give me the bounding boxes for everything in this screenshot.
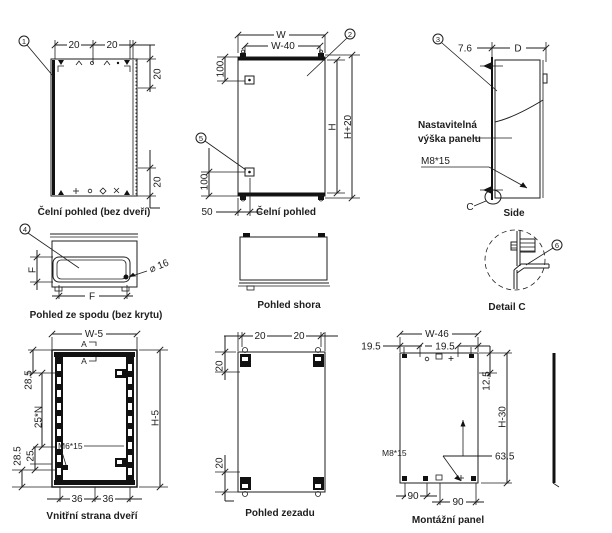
dim-door-pitch: 25*N: [34, 406, 45, 428]
dim-door-hinge-left: 36: [71, 494, 83, 505]
balloon-5-number: 5: [199, 134, 203, 143]
dim-rear-side-top: 20: [215, 360, 226, 372]
dim-door-height: H-5: [151, 410, 162, 427]
dim-front-width: W: [276, 30, 286, 41]
dim-panel-height: H-30: [498, 406, 509, 428]
dim-bottom-depth: F: [28, 267, 39, 273]
dim-panel-left: 19.5: [361, 342, 381, 353]
panel-note-line1: Nastavitelná: [418, 120, 477, 131]
dim-rear-top-left: 20: [254, 331, 266, 342]
view-detail-c: 6 Detail C: [485, 230, 562, 313]
view-top: Pohled shora: [238, 233, 330, 311]
balloon-6: 6: [552, 240, 562, 250]
dim-front-stud-offset: 50: [201, 207, 213, 218]
bottom-linework: [28, 233, 147, 299]
dim-rear-top-right: 20: [293, 331, 305, 342]
balloon-1: 1: [19, 36, 29, 46]
hole-diameter-label: ⌀ 16: [148, 257, 171, 275]
panel-note-line2: výška panelu: [418, 134, 481, 145]
panel-stud-label: M8*15: [382, 448, 407, 458]
view-front-no-door: 20 20 20 20 1 Čelní pohled (bez dveří): [19, 36, 164, 218]
technical-drawing-canvas: 20 20 20 20 1 Čelní pohled (bez dveří): [0, 0, 612, 533]
view-door-inner: W-5 A A 28.5 25*N 25 28.5 36 36 H-5 M6*1…: [12, 329, 168, 522]
caption-top: Pohled shora: [257, 300, 321, 311]
dim-door-bottom: 28.5: [13, 446, 24, 466]
door-stud-label: M6*15: [58, 441, 83, 451]
view-side: 7.6 D Nastavitelná výška panelu M8*15 C …: [418, 34, 549, 219]
detail-c-reference: C: [466, 202, 473, 213]
balloon-4-number: 4: [23, 225, 27, 234]
balloon-3-number: 3: [436, 35, 440, 44]
panel-linework: [383, 331, 559, 505]
dim-side-depth: D: [514, 44, 521, 55]
view-bottom-no-cover: F F ⌀ 16 4 Pohled ze spodu (bez krytu): [20, 224, 171, 321]
dim-door-top: 28.5: [24, 370, 35, 390]
dim-rear-side-bottom: 20: [215, 457, 226, 469]
side-stud-label: M8*15: [421, 156, 450, 167]
caption-rear: Pohled zezadu: [245, 508, 314, 519]
view-front: W W-40 100 100 50 H H+20 2 5 Čelní pohle…: [196, 29, 360, 218]
dim-front-nd-top-right: 20: [106, 40, 118, 51]
dim-bottom-width: F: [89, 292, 95, 303]
dim-panel-bottom-right: 90: [452, 497, 464, 508]
dim-panel-mid: 63.5: [495, 452, 515, 463]
drawing-sheet: 20 20 20 20 1 Čelní pohled (bez dveří): [0, 0, 612, 533]
balloon-5: 5: [196, 133, 206, 143]
balloon-6-number: 6: [555, 241, 559, 250]
dim-front-nd-side-bottom: 20: [153, 176, 164, 188]
caption-bottom-no-cover: Pohled ze spodu (bez krytu): [30, 310, 163, 321]
top-linework: [238, 233, 330, 290]
dim-door-step: 25: [26, 450, 37, 462]
dim-front-stud-top: 100: [216, 60, 227, 77]
dim-front-nd-top-left: 20: [68, 40, 80, 51]
dim-panel-bottom-left: 90: [407, 491, 419, 502]
dim-front-nd-side-top: 20: [153, 68, 164, 80]
balloon-1-number: 1: [22, 37, 26, 46]
balloon-2-number: 2: [348, 30, 352, 39]
dim-panel-top-offset: 12.5: [482, 371, 493, 391]
dim-front-height: H: [328, 123, 339, 130]
section-mark-a-top: A: [81, 339, 87, 349]
dim-front-width-inner: W-40: [271, 41, 295, 52]
view-mounting-panel: W-46 19.5 19.5 12.5 H-30 63.5 M8*15 90 9…: [361, 329, 559, 526]
balloon-3: 3: [433, 34, 443, 44]
dim-side-front-offset: 7.6: [458, 44, 472, 55]
front-no-door-linework: [27, 40, 160, 208]
balloon-2: 2: [345, 29, 355, 39]
dim-panel-right: 19.5: [435, 342, 455, 353]
dim-front-stud-bottom: 100: [200, 173, 211, 190]
dim-door-width: W-5: [85, 329, 104, 340]
dim-front-height-total: H+20: [343, 114, 354, 139]
rear-linework: [215, 332, 338, 501]
balloon-4: 4: [20, 224, 30, 234]
dim-door-hinge-right: 36: [102, 494, 114, 505]
caption-door-inner: Vnitřní strana dveří: [46, 511, 138, 522]
dim-panel-width: W-46: [425, 329, 449, 340]
caption-side: Side: [503, 208, 525, 219]
caption-mounting-panel: Montážní panel: [412, 515, 484, 526]
section-mark-a-bottom: A: [81, 356, 87, 366]
caption-detail-c: Detail C: [488, 302, 525, 313]
view-rear: 20 20 20 20 Pohled zezadu: [215, 331, 339, 519]
caption-front-no-door: Čelní pohled (bez dveří): [38, 205, 151, 218]
caption-front: Čelní pohled: [256, 205, 316, 218]
detail-c-linework: [485, 230, 553, 290]
